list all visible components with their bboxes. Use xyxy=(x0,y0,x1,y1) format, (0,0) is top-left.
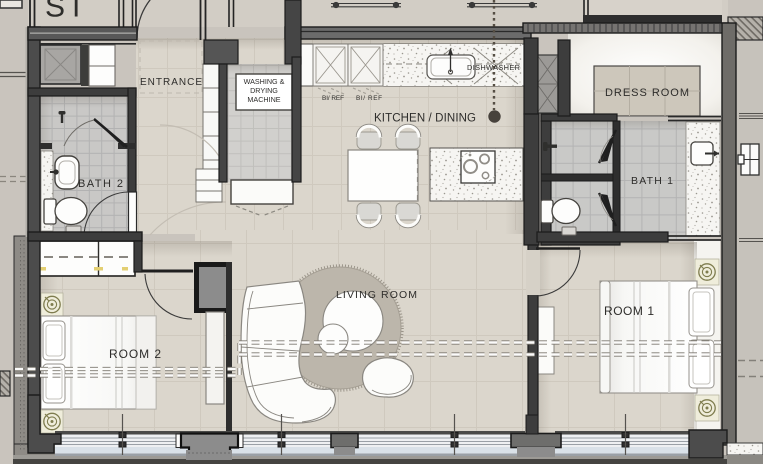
svg-text:MACHINE: MACHINE xyxy=(247,95,280,104)
svg-text:ROOM 1: ROOM 1 xyxy=(604,304,654,318)
svg-text:WASHING &: WASHING & xyxy=(244,77,285,86)
svg-text:ROOM 2: ROOM 2 xyxy=(109,347,161,361)
svg-text:LIVING ROOM: LIVING ROOM xyxy=(336,289,417,301)
svg-text:BI/ REF: BI/ REF xyxy=(322,95,344,102)
svg-text:ST: ST xyxy=(45,0,87,24)
svg-text:KITCHEN / DINING: KITCHEN / DINING xyxy=(374,113,476,125)
svg-text:DISHWASHER: DISHWASHER xyxy=(467,63,520,72)
svg-text:DRESS ROOM: DRESS ROOM xyxy=(605,87,689,99)
svg-text:DRYING: DRYING xyxy=(250,86,278,95)
svg-text:BATH 2: BATH 2 xyxy=(78,178,123,190)
svg-text:BI/ REF: BI/ REF xyxy=(356,95,382,102)
svg-text:ENTRANCE: ENTRANCE xyxy=(140,77,202,88)
svg-text:BATH 1: BATH 1 xyxy=(631,175,673,187)
